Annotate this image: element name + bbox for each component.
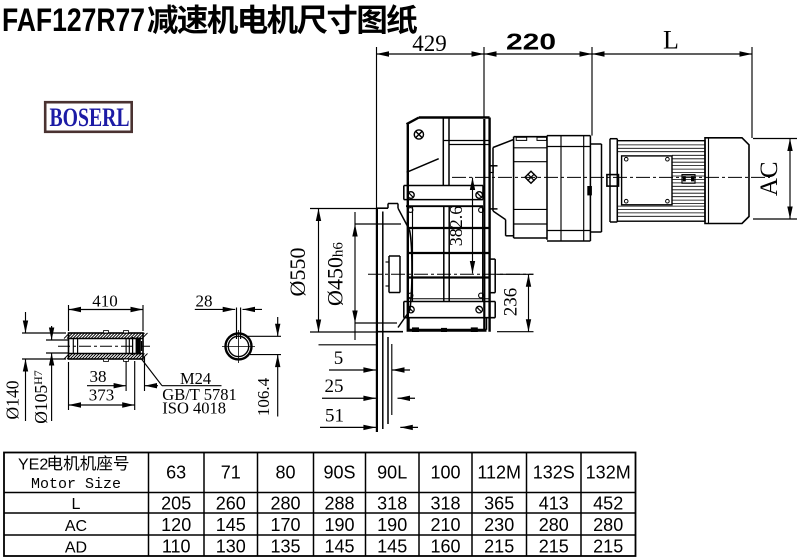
svg-text:5: 5 <box>334 348 344 369</box>
svg-text:Ø550: Ø550 <box>285 248 310 297</box>
svg-text:25: 25 <box>325 376 344 397</box>
svg-text:410: 410 <box>92 292 118 311</box>
svg-text:280: 280 <box>593 515 623 535</box>
svg-text:28: 28 <box>196 292 213 311</box>
svg-text:135: 135 <box>270 537 300 557</box>
svg-text:160: 160 <box>430 537 460 557</box>
svg-text:413: 413 <box>539 493 569 513</box>
svg-text:90S: 90S <box>323 462 355 482</box>
svg-text:170: 170 <box>270 515 300 535</box>
svg-text:L: L <box>72 496 81 513</box>
svg-text:215: 215 <box>484 537 514 557</box>
svg-text:260: 260 <box>216 493 246 513</box>
svg-text:280: 280 <box>539 515 569 535</box>
svg-text:51: 51 <box>325 406 344 427</box>
svg-text:365: 365 <box>484 493 514 513</box>
svg-text:100: 100 <box>430 462 460 482</box>
svg-text:Motor Size: Motor Size <box>31 476 121 493</box>
svg-text:106.4: 106.4 <box>254 377 273 416</box>
svg-text:318: 318 <box>430 493 460 513</box>
svg-text:AC: AC <box>65 518 87 535</box>
svg-text:38: 38 <box>90 367 107 386</box>
svg-text:71: 71 <box>221 462 241 482</box>
svg-text:215: 215 <box>539 537 569 557</box>
svg-text:L: L <box>663 26 679 55</box>
svg-text:215: 215 <box>593 537 623 557</box>
svg-text:FAF127R77: FAF127R77 <box>2 2 145 38</box>
svg-text:145: 145 <box>324 537 354 557</box>
svg-text:80: 80 <box>275 462 295 482</box>
svg-text:230: 230 <box>484 515 514 535</box>
svg-text:220: 220 <box>506 29 556 55</box>
svg-text:90L: 90L <box>377 462 407 482</box>
svg-text:110: 110 <box>162 537 191 557</box>
svg-text:190: 190 <box>377 515 407 535</box>
svg-text:Ø140: Ø140 <box>3 380 23 419</box>
svg-text:AC: AC <box>756 161 783 196</box>
svg-text:373: 373 <box>89 386 115 405</box>
svg-text:190: 190 <box>324 515 354 535</box>
svg-text:132M: 132M <box>586 462 631 482</box>
svg-text:AD: AD <box>65 539 87 556</box>
svg-text:280: 280 <box>270 493 300 513</box>
svg-text:288: 288 <box>324 493 354 513</box>
svg-text:112M: 112M <box>477 462 521 482</box>
svg-text:236: 236 <box>501 288 522 317</box>
svg-text:452: 452 <box>593 493 623 513</box>
svg-text:145: 145 <box>377 537 407 557</box>
svg-text:120: 120 <box>161 515 191 535</box>
svg-text:63: 63 <box>166 462 186 482</box>
svg-text:145: 145 <box>216 515 246 535</box>
svg-text:318: 318 <box>377 493 407 513</box>
svg-text:205: 205 <box>161 493 191 513</box>
svg-text:429: 429 <box>412 31 447 56</box>
svg-text:ISO 4018: ISO 4018 <box>162 398 226 417</box>
svg-text:130: 130 <box>216 537 246 557</box>
svg-text:210: 210 <box>430 515 460 535</box>
svg-text:132S: 132S <box>533 462 575 482</box>
svg-text:382.6: 382.6 <box>446 206 466 247</box>
svg-text:YE2: YE2 <box>18 456 48 473</box>
svg-text:BOSERL: BOSERL <box>50 103 130 132</box>
